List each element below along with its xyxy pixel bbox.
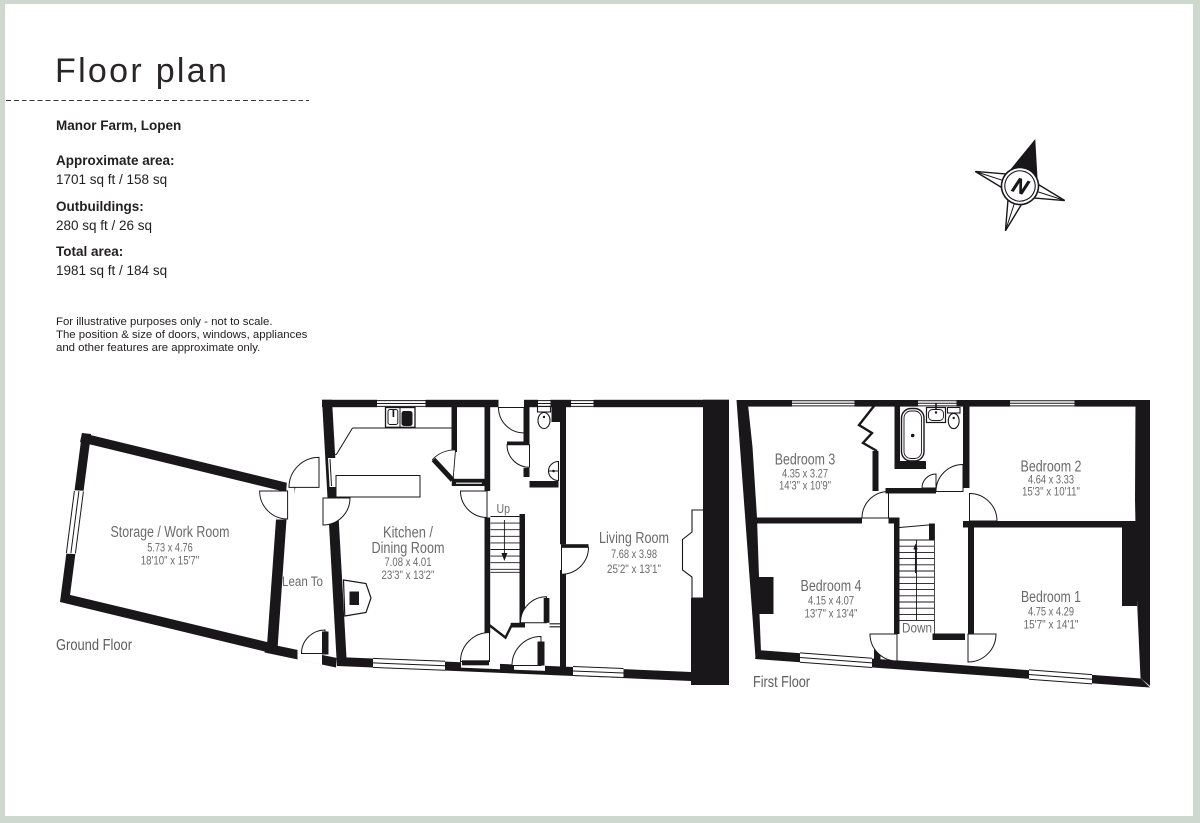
svg-text:13'7" x 13'4": 13'7" x 13'4"	[805, 607, 858, 621]
svg-text:7.08 x 4.01: 7.08 x 4.01	[385, 555, 432, 569]
svg-text:4.15 x 4.07: 4.15 x 4.07	[808, 594, 854, 608]
svg-text:Storage / Work Room: Storage / Work Room	[111, 524, 230, 541]
svg-text:25'2" x 13'1": 25'2" x 13'1"	[607, 562, 661, 576]
svg-text:23'3" x 13'2": 23'3" x 13'2"	[382, 568, 435, 582]
svg-text:14'3" x 10'9": 14'3" x 10'9"	[779, 479, 831, 493]
svg-text:7.68 x 3.98: 7.68 x 3.98	[611, 547, 657, 561]
svg-text:Bedroom 4: Bedroom 4	[801, 578, 862, 595]
svg-text:Ground Floor: Ground Floor	[56, 637, 132, 654]
svg-text:4.75 x 4.29: 4.75 x 4.29	[1028, 605, 1074, 619]
svg-text:First Floor: First Floor	[753, 674, 810, 691]
svg-text:Kitchen /: Kitchen /	[383, 525, 434, 542]
svg-text:15'7" x 14'1": 15'7" x 14'1"	[1024, 618, 1079, 632]
svg-text:15'3" x 10'11": 15'3" x 10'11"	[1022, 485, 1080, 499]
svg-text:Living Room: Living Room	[599, 530, 669, 547]
svg-text:Bedroom 1: Bedroom 1	[1021, 589, 1081, 606]
svg-text:Down: Down	[902, 621, 932, 636]
svg-text:Lean To: Lean To	[282, 574, 323, 589]
svg-text:5.73 x 4.76: 5.73 x 4.76	[147, 541, 193, 555]
svg-text:Up: Up	[497, 502, 511, 516]
svg-text:18'10" x 15'7": 18'10" x 15'7"	[141, 554, 200, 568]
